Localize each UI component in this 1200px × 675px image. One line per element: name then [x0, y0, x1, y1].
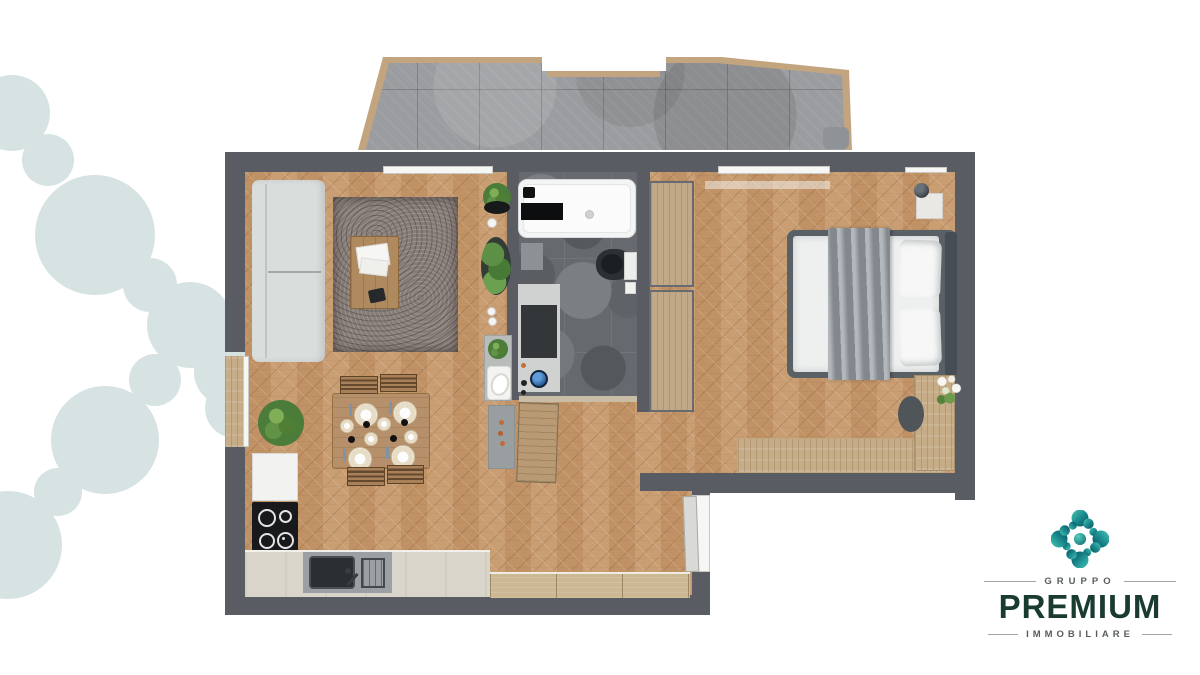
dining-table [332, 393, 430, 469]
console-table [484, 335, 512, 401]
wall-top [225, 152, 975, 172]
bath-drain [585, 210, 594, 219]
toilet-seat [601, 254, 623, 274]
burner [279, 510, 292, 523]
dining-chair [380, 374, 417, 392]
book [359, 257, 389, 276]
vanity-item [521, 390, 526, 395]
cutlery [386, 447, 389, 459]
cup [390, 435, 397, 442]
wall-hall-right-lower [692, 572, 710, 615]
vanity-top [521, 305, 557, 358]
divider-line [984, 581, 1036, 582]
wall-bottom [225, 595, 710, 615]
wall-left-lower [225, 447, 245, 615]
vanity-item [521, 363, 526, 368]
flower-vase [933, 373, 963, 407]
stool-cushion [488, 371, 512, 398]
bedside-lamp [914, 183, 929, 198]
bathroom-threshold [519, 396, 637, 402]
bathroom-door-leaf [516, 402, 559, 483]
apartment-floorplan: GRUPPO PREMIUM IMMOBILIARE [0, 0, 1200, 675]
cooktop [252, 502, 298, 551]
dining-chair [347, 467, 385, 486]
terrace-mat [823, 127, 849, 149]
side-plate [340, 419, 354, 433]
balcony-door [243, 356, 249, 447]
cup [363, 421, 370, 428]
brand-group-label: GRUPPO [1044, 576, 1115, 587]
balcony-door-sill [225, 356, 245, 447]
bedroom-window [905, 167, 947, 173]
toilet-tank [624, 252, 637, 280]
hall-cart [488, 405, 515, 469]
washbasin [530, 370, 548, 388]
sideboard [490, 572, 690, 598]
pillow [898, 239, 942, 298]
coffee-table [350, 236, 399, 309]
shelf-cup [487, 307, 496, 316]
brand-logo-mark [1051, 510, 1109, 568]
headboard [945, 232, 957, 376]
sink-unit [303, 552, 392, 593]
cart-item [500, 441, 505, 446]
decor-blob [22, 134, 74, 186]
entrance-door-leaf [683, 496, 700, 572]
blanket [828, 228, 890, 380]
faucet-head [345, 568, 351, 574]
bath-tray [521, 203, 563, 220]
dining-chair [387, 465, 424, 484]
sofa-cushion-seam [268, 271, 321, 273]
cup [348, 436, 355, 443]
dining-chair [340, 376, 378, 394]
burner [259, 533, 275, 549]
drying-rack [361, 558, 385, 588]
shelf-cup [488, 317, 497, 326]
cutlery [349, 404, 352, 416]
bathtub [518, 179, 636, 238]
terrace-door-bedroom [718, 166, 830, 174]
divider-line [1142, 634, 1172, 635]
side-plate [364, 432, 378, 446]
wall-hall-right-upper [692, 473, 710, 495]
terrace [355, 55, 855, 152]
wall-bedroom-bottom [710, 473, 975, 493]
cart-item [499, 420, 504, 425]
cutlery [389, 402, 392, 414]
side-plate [404, 430, 418, 444]
console-stool [487, 366, 511, 400]
console-plant [488, 339, 508, 359]
fridge [252, 453, 298, 501]
terrace-tiles [355, 55, 855, 152]
brand-sector-label: IMMOBILIARE [1026, 629, 1134, 640]
burner-center [282, 537, 285, 540]
wall-stub-hallway [640, 473, 693, 491]
floor-plan [225, 55, 975, 615]
cup [401, 419, 408, 426]
shelf-cup [487, 218, 497, 228]
living-room-window [383, 166, 493, 174]
bath-mat [521, 243, 543, 270]
vanity [518, 284, 560, 392]
side-plate [377, 417, 391, 431]
bed [787, 230, 957, 378]
brand-name: PREMIUM [975, 590, 1185, 624]
bedroom-threshold [705, 181, 830, 189]
burner [277, 532, 294, 549]
decor-object [368, 287, 386, 303]
toilet-brush [625, 282, 636, 294]
shelf-tray [484, 201, 510, 214]
dining-plant [258, 400, 304, 446]
divider-line [988, 634, 1018, 635]
divider-line [1124, 581, 1176, 582]
oval-planter [481, 237, 511, 295]
sofa-back-seam [265, 184, 267, 358]
pillow [898, 307, 942, 366]
wall-left-upper [225, 152, 245, 352]
wardrobe-panel [649, 181, 694, 287]
sofa [252, 180, 325, 362]
cutlery [343, 449, 346, 461]
burner [258, 509, 276, 527]
cart-item [498, 431, 503, 436]
wall-right [955, 152, 975, 500]
wardrobe-panel [649, 290, 694, 412]
brand-logo: GRUPPO PREMIUM IMMOBILIARE [975, 498, 1185, 663]
desk-chair [898, 396, 924, 432]
bath-headrest [523, 187, 535, 198]
vanity-item [521, 380, 527, 386]
